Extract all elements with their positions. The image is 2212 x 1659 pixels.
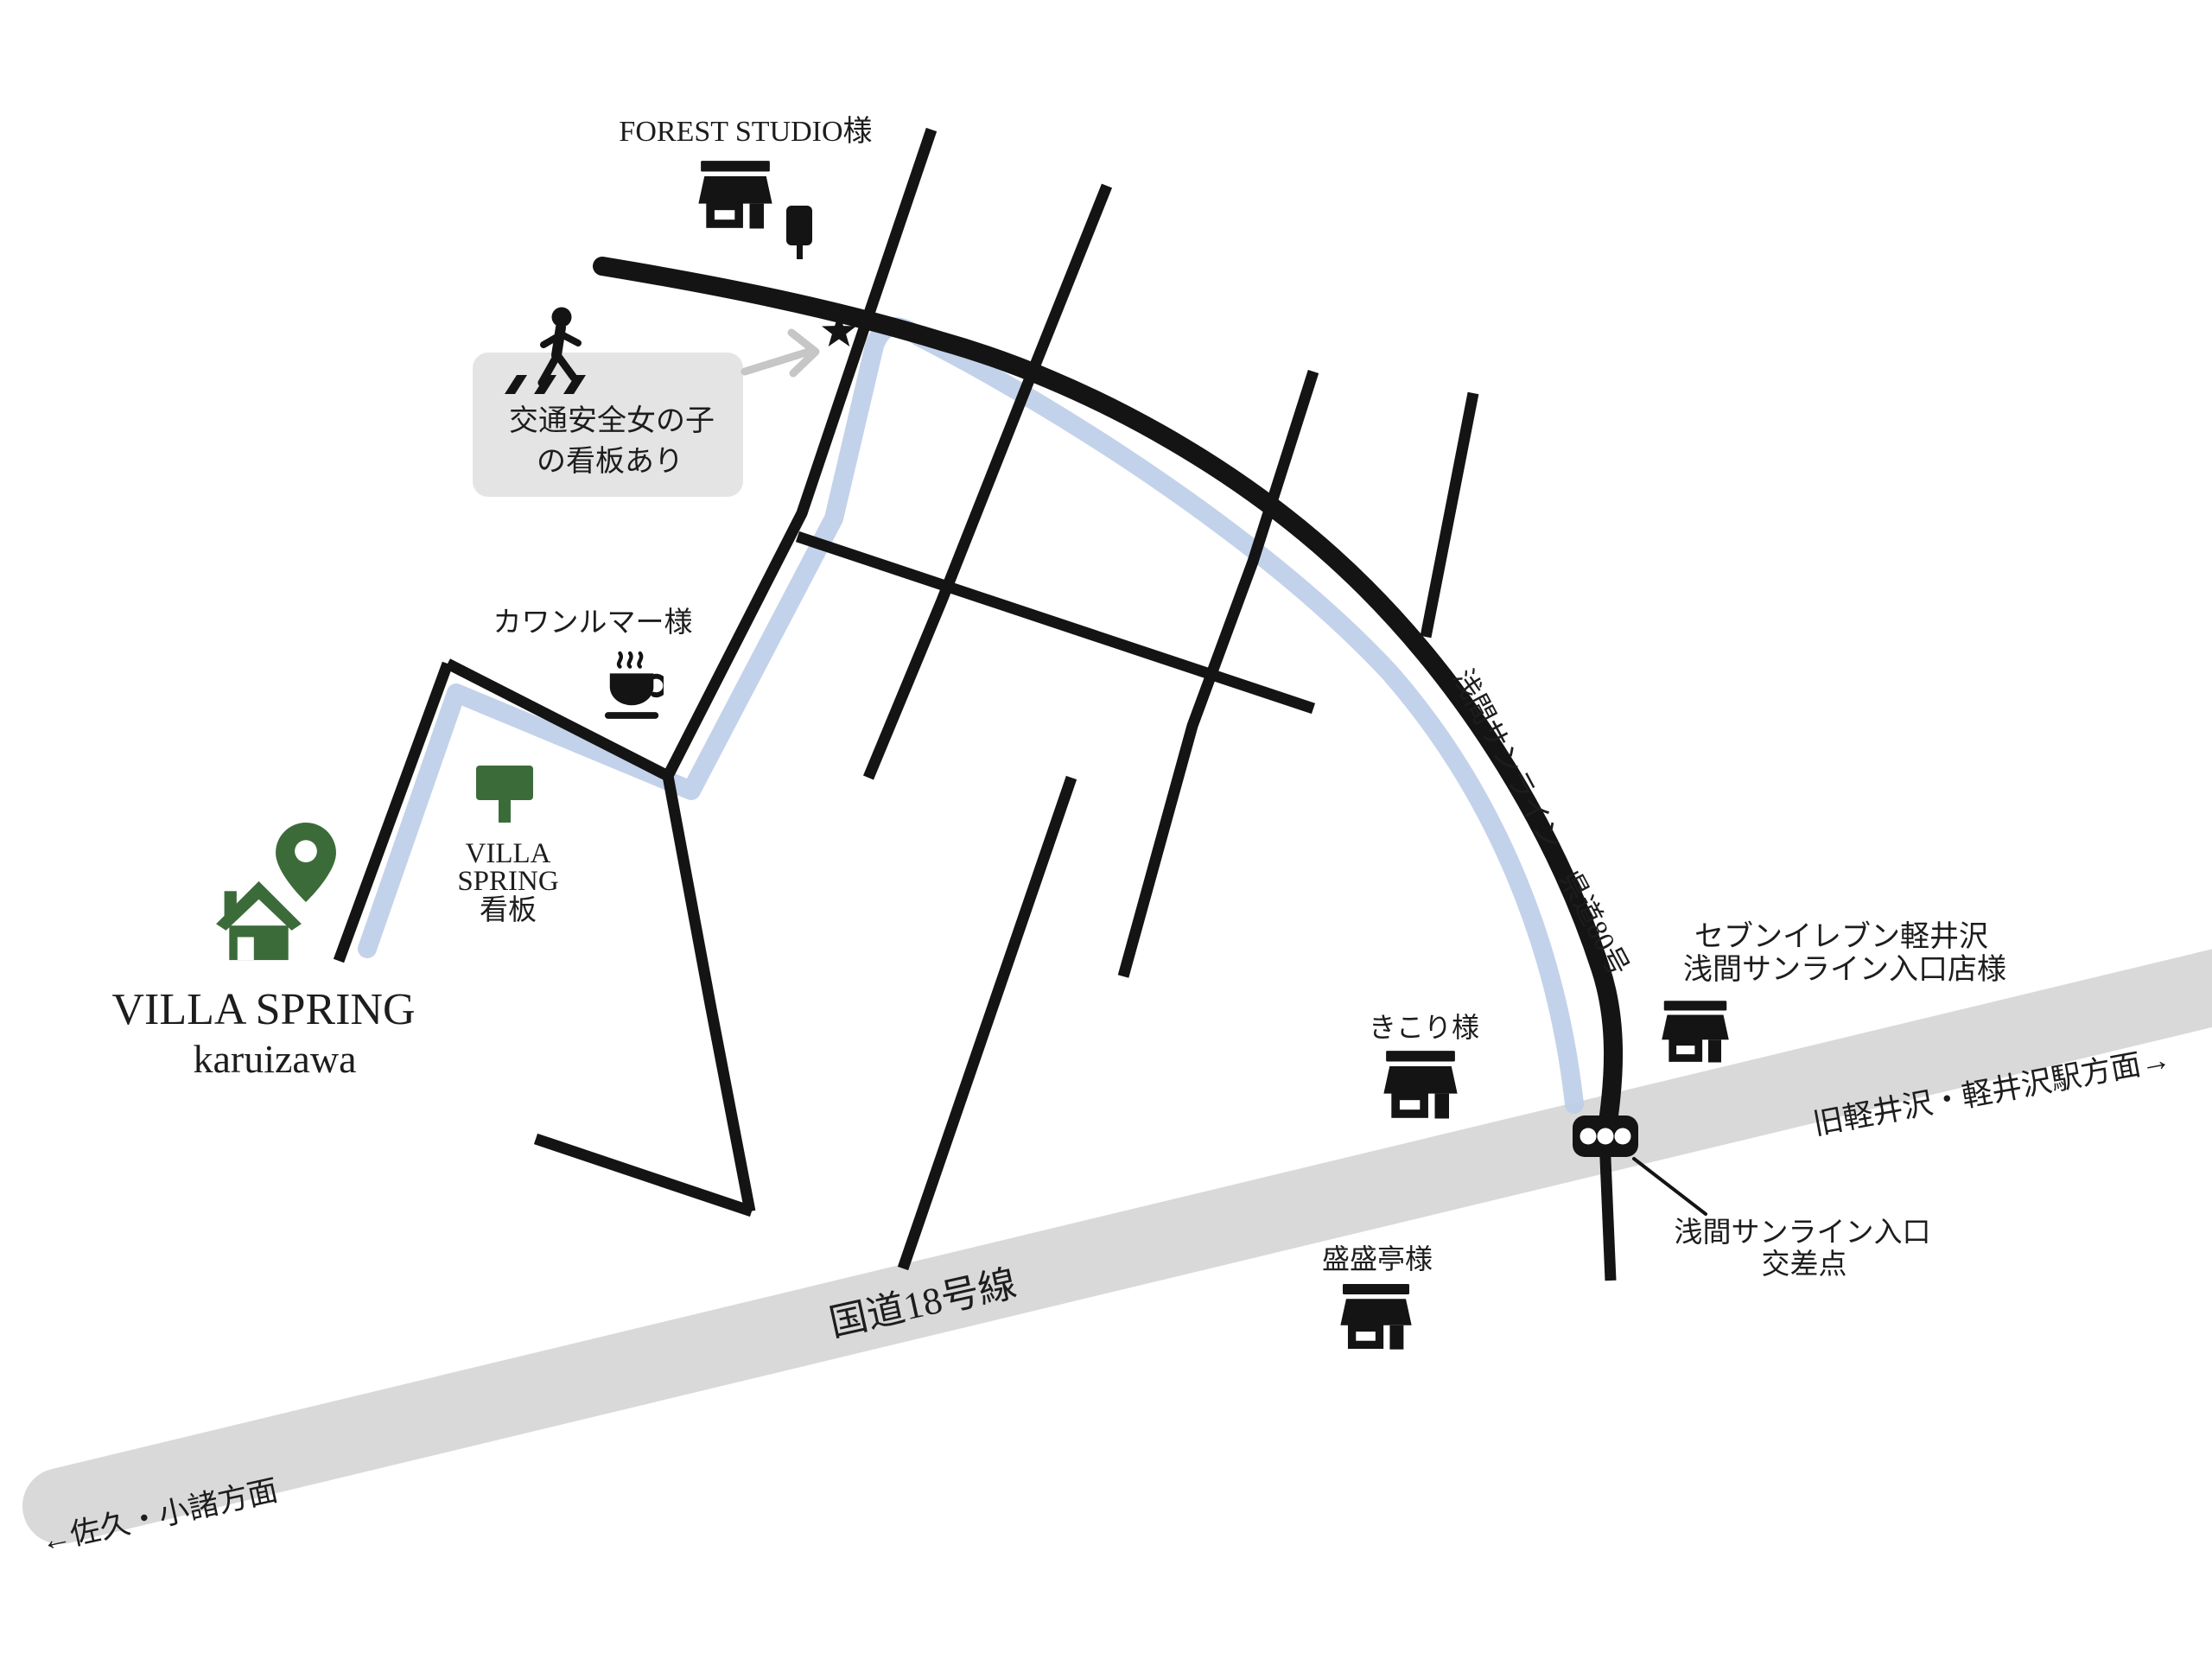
kawanrumaa-label: カワンルマー様 <box>493 607 693 639</box>
green-signboard-post <box>499 800 511 823</box>
page-title: VILLA SPRING <box>111 985 415 1034</box>
store-icon-seven-eleven <box>1662 1001 1729 1062</box>
seven-eleven-line1: セブンイレブン軽井沢 <box>1694 920 1988 953</box>
seiseitei-label: 盛盛亭様 <box>1322 1243 1433 1274</box>
note-line1: 交通安全女の子 <box>509 404 715 437</box>
access-map: FOREST STUDIO様 交通安全女の子 の看板あり カワンルマー様 VIL… <box>0 0 2212 1659</box>
map-canvas: FOREST STUDIO様 交通安全女の子 の看板あり カワンルマー様 VIL… <box>0 0 2212 1659</box>
forest-studio-label: FOREST STUDIO様 <box>619 115 872 148</box>
green-signboard-icon <box>476 766 533 800</box>
seven-eleven-line2: 浅間サンライン入口店様 <box>1683 953 2006 986</box>
traffic-light-icon <box>1573 1116 1638 1157</box>
villa-sign-line2: SPRING <box>457 866 558 897</box>
note-line2: の看板あり <box>537 445 683 478</box>
villa-sign-line1: VILLA <box>466 838 551 869</box>
intersection-line1: 浅間サンライン入口 <box>1675 1217 1931 1249</box>
store-icon-forest-studio <box>698 161 772 228</box>
intersection-line2: 交差点 <box>1762 1249 1847 1281</box>
page-subtitle: karuizawa <box>194 1037 357 1081</box>
store-icon-kikori <box>1383 1051 1457 1118</box>
kikori-label: きこり様 <box>1369 1012 1479 1043</box>
store-icon-seiseitei <box>1340 1284 1411 1350</box>
sunline-south-stub <box>1605 1139 1611 1281</box>
villa-sign-line3: 看板 <box>480 894 537 926</box>
